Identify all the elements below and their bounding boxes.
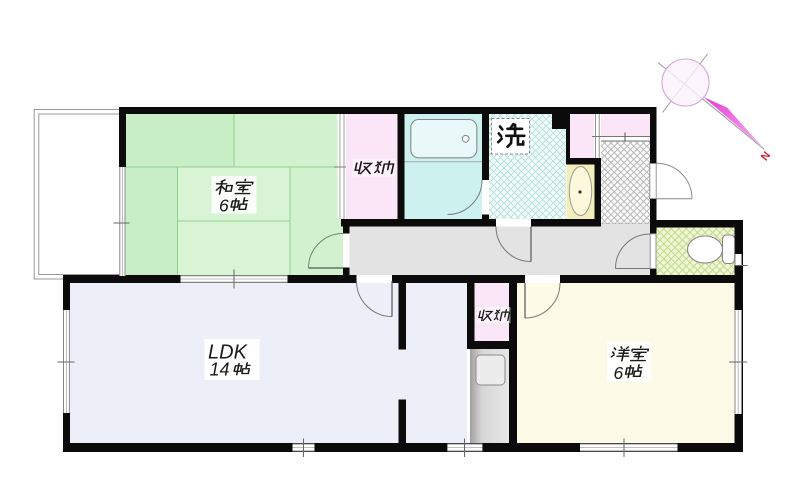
svg-text:14: 14 [210, 360, 230, 380]
svg-text:6: 6 [614, 363, 624, 383]
svg-text:6: 6 [219, 196, 229, 216]
